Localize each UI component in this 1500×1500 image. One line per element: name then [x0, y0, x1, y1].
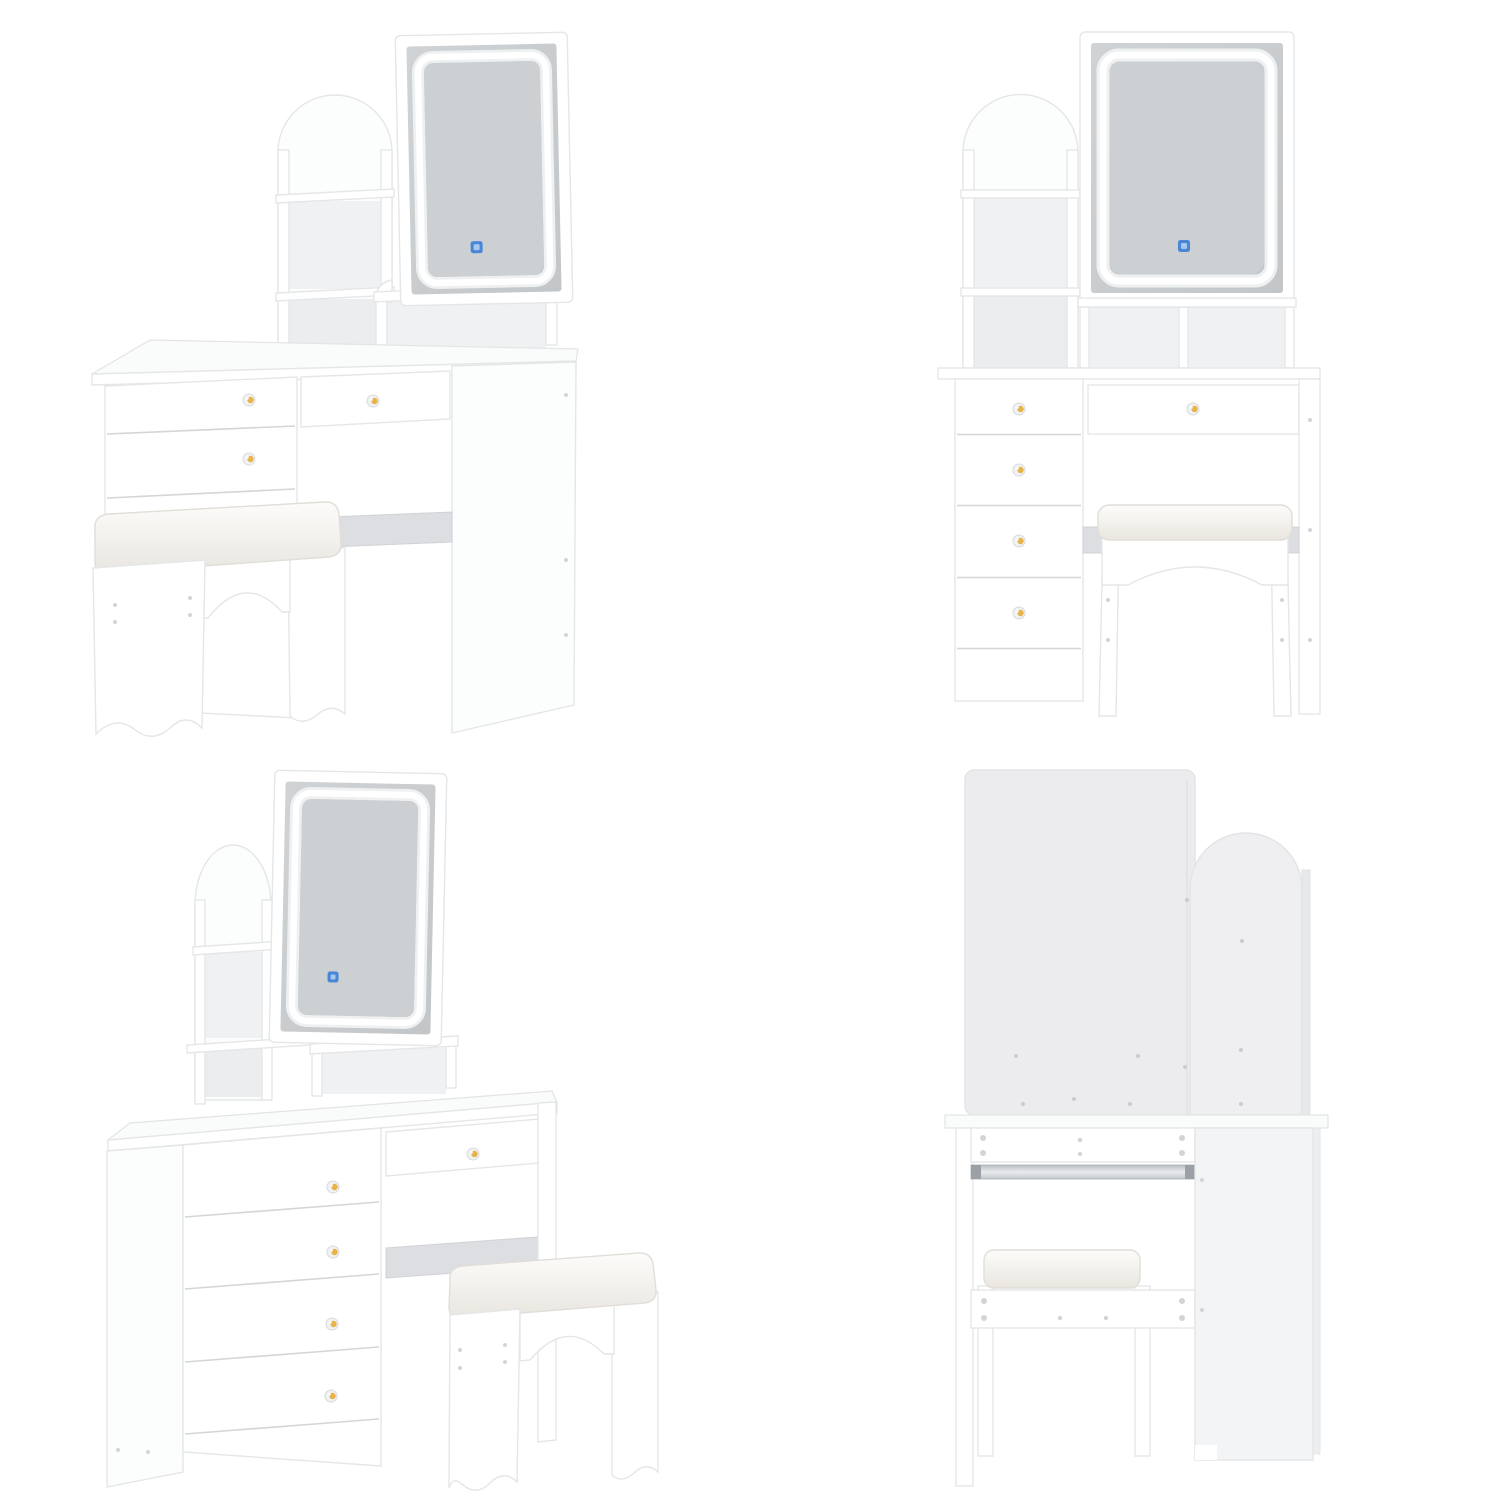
screw-hole [458, 1366, 462, 1370]
screw-hole [188, 596, 192, 600]
desk-side-panel [107, 1145, 183, 1487]
drawer-knob [1013, 403, 1025, 415]
tower-shelf [961, 190, 1080, 198]
screw-hole [146, 1450, 150, 1454]
screw-hole [458, 1348, 462, 1352]
screw-hole [1106, 598, 1110, 602]
screw-hole [1239, 1102, 1243, 1106]
screw-hole [113, 620, 117, 624]
screw-hole [980, 1150, 986, 1156]
drawer-knob [243, 453, 255, 465]
tower-cubby [204, 1049, 262, 1097]
view-angled-left [0, 0, 750, 750]
screw-hole [1078, 1138, 1082, 1142]
drawer-knob [1013, 464, 1025, 476]
screw-hole [1078, 1152, 1082, 1156]
led-mirror [1080, 32, 1294, 304]
back-apron-rail [971, 1128, 1195, 1162]
tower-side-wall [963, 150, 974, 368]
stool-leg [449, 1309, 520, 1490]
drawer-knob [327, 1246, 339, 1258]
screw-hole [1179, 1135, 1185, 1141]
screw-hole [564, 393, 568, 397]
screw-hole [116, 1448, 120, 1452]
screw-hole [1072, 1097, 1076, 1101]
desk-top-back-edge [945, 1115, 1328, 1128]
tower-side-wall [1067, 150, 1078, 368]
screw-hole [981, 1298, 987, 1304]
drawer-knob [1013, 607, 1025, 619]
stool-apron [1102, 537, 1288, 585]
side-edge-strip [1302, 870, 1310, 1115]
screw-hole [1240, 939, 1244, 943]
shelf-slab [1078, 298, 1296, 307]
shelf-divider [1179, 307, 1188, 368]
screw-hole [1308, 418, 1312, 422]
side-edge-strip [1313, 1128, 1320, 1454]
tower-back-arch-panel [1190, 833, 1310, 1115]
drawer-knob [1013, 535, 1025, 547]
screw-hole [1179, 1298, 1185, 1304]
bottom-crossbar [971, 1290, 1195, 1328]
screw-hole [1014, 1054, 1018, 1058]
screw-hole [503, 1343, 507, 1347]
drawer-knob [243, 394, 255, 406]
stool [978, 1250, 1150, 1456]
tower-cubby [974, 198, 1068, 288]
screw-hole [1280, 638, 1284, 642]
led-inner-glass [424, 61, 544, 277]
led-mirror [269, 770, 447, 1046]
shelf-cubby [1188, 307, 1285, 368]
tower-cubby [974, 296, 1068, 368]
under-mirror-shelf [1078, 298, 1296, 368]
stool-leg [93, 560, 205, 736]
screw-hole [113, 603, 117, 607]
screw-hole [1183, 1065, 1187, 1069]
led-mirror [395, 32, 573, 306]
tower-shelf [961, 288, 1080, 296]
screw-hole [1104, 1316, 1108, 1320]
tower-side-wall [195, 900, 205, 1104]
screw-hole [1200, 1308, 1204, 1312]
stool-cushion [1098, 505, 1292, 540]
shelf-interior [387, 300, 546, 348]
screw-hole [1239, 1048, 1243, 1052]
drawer-knob [367, 395, 379, 407]
screw-hole [1308, 638, 1312, 642]
screw-hole [564, 633, 568, 637]
screw-hole [503, 1360, 507, 1364]
shelf-interior [322, 1048, 446, 1094]
screw-hole [564, 558, 568, 562]
tower-cubby [288, 299, 382, 349]
screw-hole [1136, 1054, 1140, 1058]
screw-hole [1179, 1150, 1185, 1156]
view-front [750, 0, 1500, 750]
wide-drawer [386, 1118, 551, 1176]
drawer-slide-rail [971, 1165, 1195, 1179]
drawer-knob [1187, 403, 1199, 415]
drawer-knob [467, 1148, 479, 1160]
tower-cubby [288, 201, 382, 289]
touch-sensor-icon [327, 971, 338, 982]
stool-leg [612, 1292, 658, 1479]
stool-leg [288, 548, 345, 721]
screw-hole [1128, 1102, 1132, 1106]
screw-hole [980, 1135, 986, 1141]
desk-side-panel [452, 362, 576, 733]
screw-hole [1058, 1316, 1062, 1320]
drawer-column [183, 1128, 381, 1466]
view-back [750, 750, 1500, 1500]
shelf-divider [1285, 307, 1294, 368]
screw-hole [1200, 1178, 1204, 1182]
cabinet-back [1195, 1128, 1320, 1460]
screw-hole [1185, 898, 1189, 902]
desk-leg [1299, 379, 1320, 714]
stool [1098, 505, 1292, 716]
cabinet-kick-notch [1195, 1445, 1217, 1460]
tower-side-wall [278, 150, 289, 354]
screw-hole [1179, 1315, 1185, 1321]
drawer-knob [325, 1390, 337, 1402]
drawer-knob [326, 1318, 338, 1330]
view-angled-right [0, 750, 750, 1500]
tower-cubby [204, 952, 262, 1038]
screw-hole [981, 1315, 987, 1321]
storage-tower [961, 94, 1080, 368]
mirror-back-panel [965, 770, 1195, 1115]
touch-sensor-icon [471, 241, 483, 253]
desk-top [938, 368, 1320, 379]
stool-cushion [984, 1250, 1140, 1288]
led-inner-glass [298, 799, 418, 1017]
screw-hole [1106, 638, 1110, 642]
shelf-cubby [1089, 307, 1179, 368]
shelf-divider [1080, 307, 1089, 368]
product-view-grid [0, 0, 1500, 1500]
touch-sensor-icon [1178, 240, 1190, 252]
screw-hole [1021, 1102, 1025, 1106]
drawer-knob [327, 1181, 339, 1193]
screw-hole [188, 613, 192, 617]
screw-hole [1308, 528, 1312, 532]
screw-hole [1280, 598, 1284, 602]
